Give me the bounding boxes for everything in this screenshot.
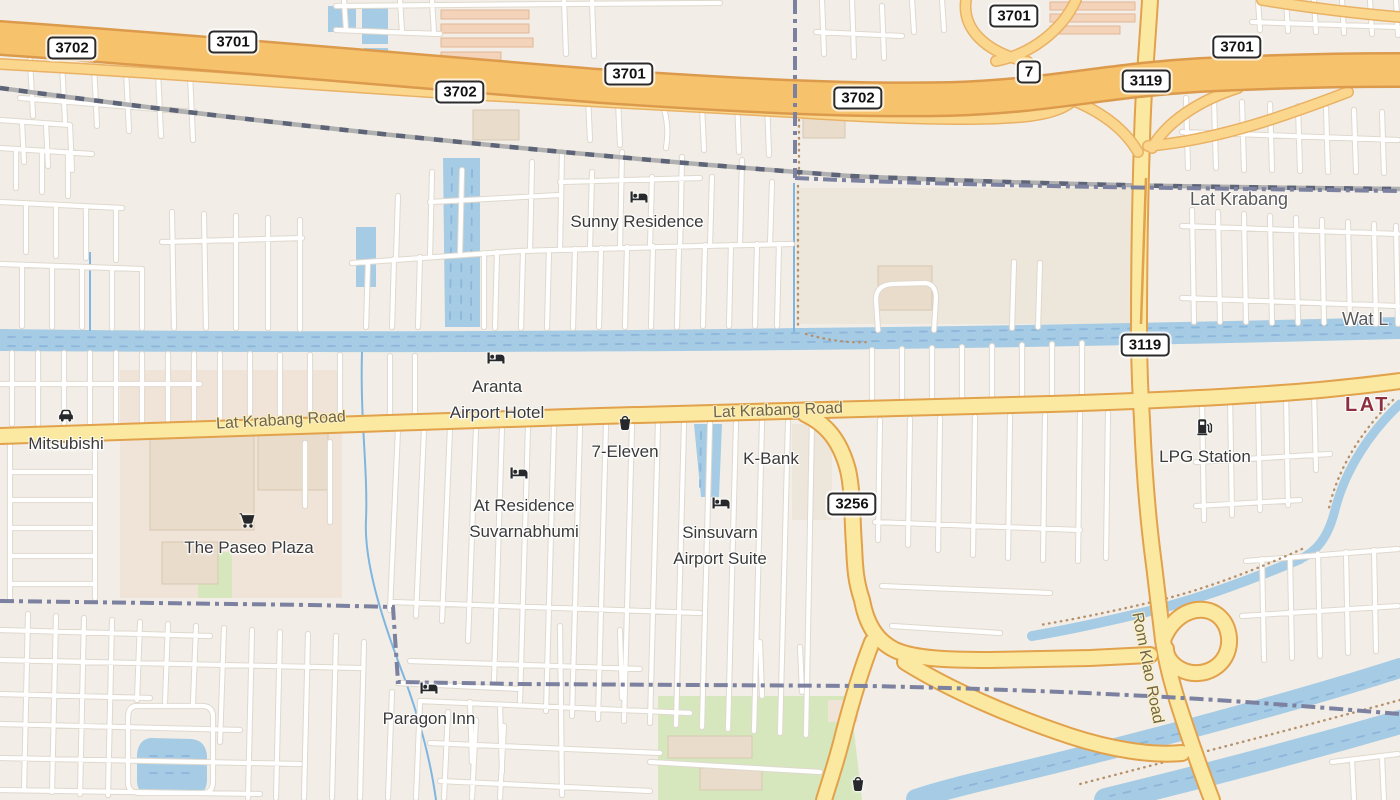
poi-label-7-eleven: 7-Eleven (591, 439, 658, 465)
route-badge: 3701 (1212, 36, 1261, 59)
poi-label-the-paseo-plaza: The Paseo Plaza (184, 535, 313, 561)
hotel-icon[interactable] (710, 492, 730, 512)
basket-icon[interactable] (615, 413, 635, 433)
cart-icon[interactable] (237, 510, 257, 530)
district-label-lat: LAT (1345, 394, 1390, 417)
poi-label-k-bank: K-Bank (743, 446, 799, 472)
route-badge: 3701 (604, 63, 653, 86)
route-badge: 3702 (833, 87, 882, 110)
hotel-icon[interactable] (508, 462, 528, 482)
route-badge: 3702 (47, 37, 96, 60)
car-icon[interactable] (56, 404, 76, 424)
poi-label-paragon-inn: Paragon Inn (383, 706, 476, 732)
route-badge: 3701 (989, 5, 1038, 28)
poi-label-sunny-residence: Sunny Residence (570, 209, 703, 235)
poi-label-sinsuvarn-airport-suite: SinsuvarnAirport Suite (673, 520, 767, 572)
map-canvas[interactable]: 3702 3701 3702 3701 3702 3701 7 3119 370… (0, 0, 1400, 800)
fuel-icon[interactable] (1194, 417, 1214, 437)
hotel-icon[interactable] (418, 677, 438, 697)
route-badge: 3119 (1122, 70, 1171, 93)
poi-label-at-residence-suvarnabhumi: At ResidenceSuvarnabhumi (469, 493, 579, 545)
route-badge: 3119 (1121, 334, 1170, 357)
route-badge: 3256 (827, 493, 876, 516)
poi-label-lpg-station: LPG Station (1159, 444, 1251, 470)
map-render-layer (0, 0, 1400, 800)
route-badge: 3702 (435, 81, 484, 104)
place-label-lat-krabang: Lat Krabang (1190, 189, 1288, 210)
hotel-icon[interactable] (485, 347, 505, 367)
poi-label-aranta-airport-hotel: ArantaAirport Hotel (450, 374, 544, 426)
place-label-wat-l: Wat L (1342, 309, 1388, 330)
poi-label-mitsubishi: Mitsubishi (28, 431, 104, 457)
hotel-icon[interactable] (628, 186, 648, 206)
basket-icon[interactable] (848, 774, 868, 794)
route-badge: 3701 (208, 31, 257, 54)
route-badge: 7 (1017, 61, 1041, 84)
